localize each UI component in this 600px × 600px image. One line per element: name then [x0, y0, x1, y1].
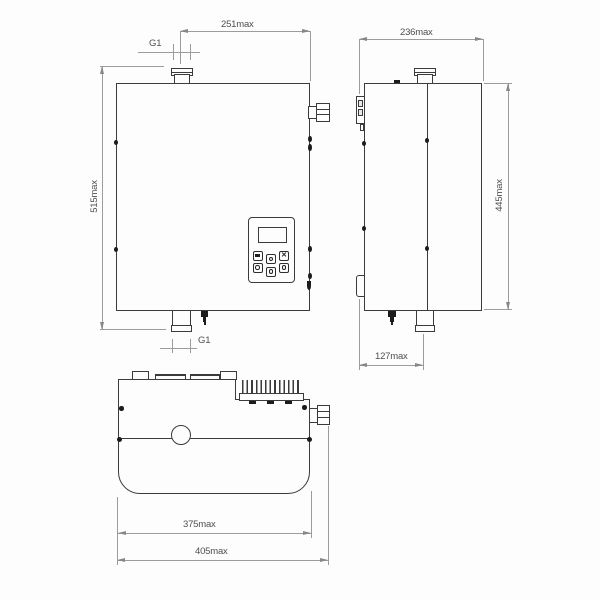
heatsink-foot-2 [267, 401, 274, 404]
dial-left-icon [255, 265, 260, 270]
front-height-arrow-top [100, 66, 104, 74]
side-height-dim-line [508, 83, 509, 310]
front-bottom-pipe-flange [171, 325, 192, 332]
front-right-clip-1 [308, 136, 312, 142]
top-side-pipe-flange [317, 405, 330, 425]
top-side-pipe-line1 [318, 411, 329, 412]
side-divider-dot-lower [425, 246, 429, 251]
side-depth-ext-right [483, 39, 484, 81]
side-offset-dim-line [359, 365, 423, 366]
front-drain-valve-tip [204, 322, 206, 325]
front-height-dim-line [102, 66, 103, 330]
panel-button-menu [253, 251, 263, 261]
front-port-top-label: G1 [149, 38, 161, 49]
panel-button-left [253, 263, 263, 273]
side-cover-divider-line [427, 84, 428, 310]
panel-button-right [279, 263, 289, 273]
top-seam-dot-right [307, 437, 312, 442]
side-offset-arrow-right [415, 363, 423, 367]
heatsink-base [239, 393, 304, 401]
top-body-width-dim-line [118, 533, 311, 534]
front-port-bottom-tick2 [190, 339, 191, 353]
top-screw-left [119, 406, 124, 411]
top-body-width-label: 375max [183, 519, 216, 530]
dial-right-icon [282, 265, 287, 270]
front-height-label: 515max [89, 180, 100, 213]
front-port-bottom-label: G1 [198, 335, 210, 346]
front-height-ext-bottom [100, 329, 166, 330]
top-bump-2 [190, 374, 220, 380]
heatsink-foot-1 [249, 401, 256, 404]
side-height-arrow-top [506, 83, 510, 91]
side-depth-dim-line [359, 39, 483, 40]
side-bracket-upper-detail1 [358, 100, 363, 107]
front-height-arrow-bottom [100, 322, 104, 330]
front-width-arrow-right [302, 29, 310, 33]
side-drain-valve-tip [391, 322, 393, 325]
side-edge-dot-upper [362, 141, 366, 146]
front-right-clip-2 [308, 144, 312, 151]
front-top-pipe-neck [174, 74, 190, 84]
top-body-width-ext-right [311, 491, 312, 538]
front-port-top-tick2 [190, 44, 191, 60]
side-bracket-lower [356, 275, 365, 297]
side-offset-ext-left [359, 299, 360, 370]
side-depth-arrow-right [475, 37, 483, 41]
front-left-clip-upper [114, 140, 118, 145]
front-width-ext-right [310, 31, 311, 81]
dial-up-icon [269, 257, 274, 262]
side-depth-ext-left [359, 39, 360, 94]
panel-button-cancel: ✕ [279, 251, 289, 261]
front-port-bottom-leader [160, 348, 197, 349]
top-total-width-dim-line [117, 560, 328, 561]
top-width-ext-left-shared [117, 497, 118, 565]
front-left-clip-lower [114, 247, 118, 252]
front-port-top-tick1 [173, 44, 174, 60]
top-seam-dot-left [117, 437, 122, 442]
side-body-outline [364, 83, 482, 311]
top-body-width-arrow-right [303, 531, 311, 535]
top-screw-right [302, 405, 307, 410]
top-side-pipe-line2 [318, 417, 329, 418]
side-top-pipe-neck [417, 74, 433, 84]
top-pipe-opening-circle [171, 425, 191, 445]
top-total-width-ext-right [328, 426, 329, 565]
front-right-hook [307, 281, 312, 290]
top-step-vertical-edge [235, 377, 236, 400]
front-height-ext-top [100, 66, 164, 67]
top-tab-left [132, 371, 149, 380]
side-bottom-pipe-flange [415, 325, 435, 332]
technical-drawing-boiler: ✕ 515max 251max G1 G1 [0, 0, 600, 600]
side-depth-arrow-left [359, 37, 367, 41]
front-side-pipe-line1 [317, 109, 329, 110]
side-bracket-upper-detail2 [358, 109, 363, 116]
top-total-width-arrow-left [117, 558, 125, 562]
menu-bars-icon [255, 254, 261, 258]
top-cover-seam-line [118, 438, 310, 439]
top-total-width-arrow-right [320, 558, 328, 562]
control-panel-display [258, 227, 287, 243]
side-offset-arrow-left [359, 363, 367, 367]
side-height-ext-top [484, 83, 512, 84]
side-top-pipe-thread-line [415, 72, 435, 73]
heatsink-fins [242, 380, 302, 395]
heatsink-foot-3 [285, 401, 292, 404]
front-width-dim-line [180, 31, 310, 32]
side-height-label: 445max [494, 179, 505, 212]
top-body-width-arrow-left [118, 531, 126, 535]
front-side-pipe-line2 [317, 114, 329, 115]
panel-button-up [266, 254, 276, 264]
cancel-x-icon: ✕ [281, 252, 287, 259]
side-height-ext-bottom [484, 309, 512, 310]
side-depth-label: 236max [400, 27, 433, 38]
panel-button-down [266, 267, 276, 277]
side-edge-dot-lower [362, 226, 366, 231]
side-bump [360, 124, 364, 131]
front-right-clip-4 [308, 273, 312, 279]
front-width-arrow-left [180, 29, 188, 33]
front-top-pipe-thread-line [172, 72, 192, 73]
dial-down-icon [269, 269, 274, 274]
top-bump-1 [155, 374, 186, 380]
front-width-label: 251max [221, 19, 254, 30]
front-right-clip-3 [308, 246, 312, 252]
side-divider-dot-upper [425, 138, 429, 143]
front-width-ext-left [180, 31, 181, 64]
side-offset-ext-right [423, 334, 424, 370]
front-port-bottom-tick1 [172, 339, 173, 353]
side-top-edge-tick [394, 80, 400, 83]
top-total-width-label: 405max [195, 546, 228, 557]
front-side-pipe-flange [316, 103, 330, 122]
side-offset-label: 127max [375, 351, 408, 362]
top-tab-right [220, 371, 237, 380]
